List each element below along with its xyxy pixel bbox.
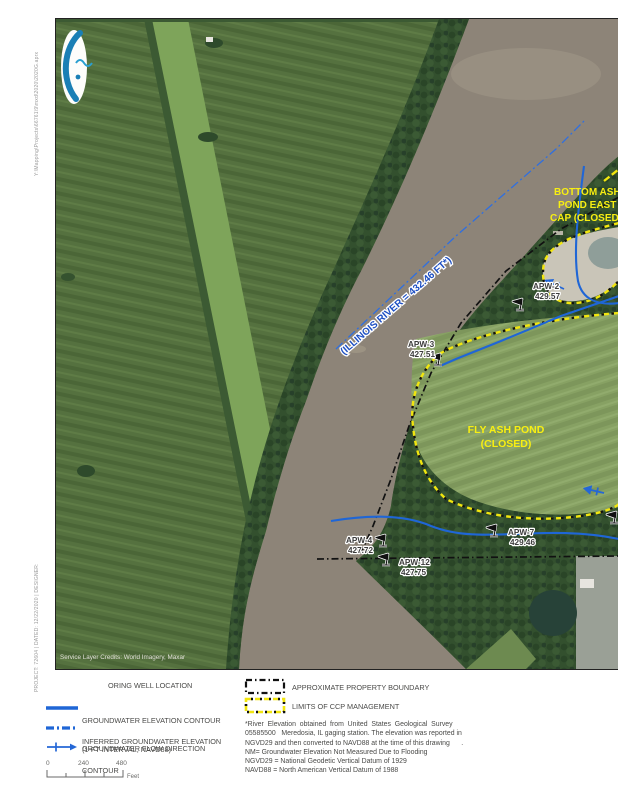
small-pond xyxy=(529,590,577,636)
service-layer-credits: Service Layer Credits: World Imagery, Ma… xyxy=(60,654,185,661)
svg-text:FLY ASH POND: FLY ASH POND xyxy=(468,424,545,436)
svg-text:APW-7: APW-7 xyxy=(508,528,535,537)
notes-block: *River Elevation obtained from United St… xyxy=(245,720,580,776)
svg-text:480: 480 xyxy=(116,760,127,767)
svg-text:427.75: 427.75 xyxy=(401,568,426,577)
inferred-contour-swatch xyxy=(45,724,79,732)
svg-text:APW-12: APW-12 xyxy=(399,558,430,567)
svg-text:429.57: 429.57 xyxy=(535,292,560,301)
legend-property-boundary-label: APPROXIMATE PROPERTY BOUNDARY xyxy=(292,683,429,693)
legend-well-location-label: ORING WELL LOCATION xyxy=(108,681,192,691)
sandbar xyxy=(451,48,601,100)
drawing-sheet: Y:\Mapping\Projects\66761\9\mxd\2020\202… xyxy=(0,0,618,800)
svg-text:CAP (CLOSED): CAP (CLOSED) xyxy=(550,213,618,224)
note-line: NAVD88 = North American Vertical Datum o… xyxy=(245,766,580,775)
note-line: NM= Groundwater Elevation Not Measured D… xyxy=(245,748,580,757)
legend-flow-label: GROUNDWATER FLOW DIRECTION xyxy=(82,744,205,754)
svg-text:APW-4: APW-4 xyxy=(346,536,373,545)
structures-area xyxy=(576,556,618,669)
svg-text:240: 240 xyxy=(78,760,89,767)
svg-text:BOTTOM ASH: BOTTOM ASH xyxy=(554,187,618,198)
note-line: NGVD29 = National Geodetic Vertical Datu… xyxy=(245,757,580,766)
svg-text:(CLOSED): (CLOSED) xyxy=(481,438,532,450)
aerial-map: APW-2 429.57 APW-3 427.51 APW-4 427.72 A… xyxy=(56,19,618,669)
svg-text:427.72: 427.72 xyxy=(348,546,373,555)
scale-bar: 0 240 480 Feet xyxy=(42,757,162,783)
note-line: NGVD29 and then converted to NAVD88 at t… xyxy=(245,739,580,748)
svg-text:POND EAST: POND EAST xyxy=(558,200,616,211)
ccp-limits-swatch xyxy=(244,697,286,714)
building xyxy=(580,579,594,588)
property-boundary-swatch xyxy=(244,678,286,695)
svg-text:427.51: 427.51 xyxy=(410,350,435,359)
file-path-sidebar: Y:\Mapping\Projects\66761\9\mxd\2020\202… xyxy=(34,26,40,176)
svg-text:Feet: Feet xyxy=(127,774,139,780)
flow-direction-swatch xyxy=(45,741,79,753)
note-line: *River Elevation obtained from United St… xyxy=(245,720,580,729)
svg-text:APW-3: APW-3 xyxy=(408,340,435,349)
note-line: 05585500 Meredosia, IL gaging station. T… xyxy=(245,729,580,738)
legend-ccp-limits-label: LIMITS OF CCP MANAGEMENT xyxy=(292,702,399,712)
project-info-sidebar: PROJECT: 72604 | DATED: 12/22/2020 | DES… xyxy=(34,556,40,692)
svg-text:APW-2: APW-2 xyxy=(533,282,560,291)
map-viewport: APW-2 429.57 APW-3 427.51 APW-4 427.72 A… xyxy=(55,18,618,670)
svg-text:429.46: 429.46 xyxy=(510,538,535,547)
svg-text:0: 0 xyxy=(46,760,50,767)
contour-line-swatch xyxy=(45,704,79,712)
